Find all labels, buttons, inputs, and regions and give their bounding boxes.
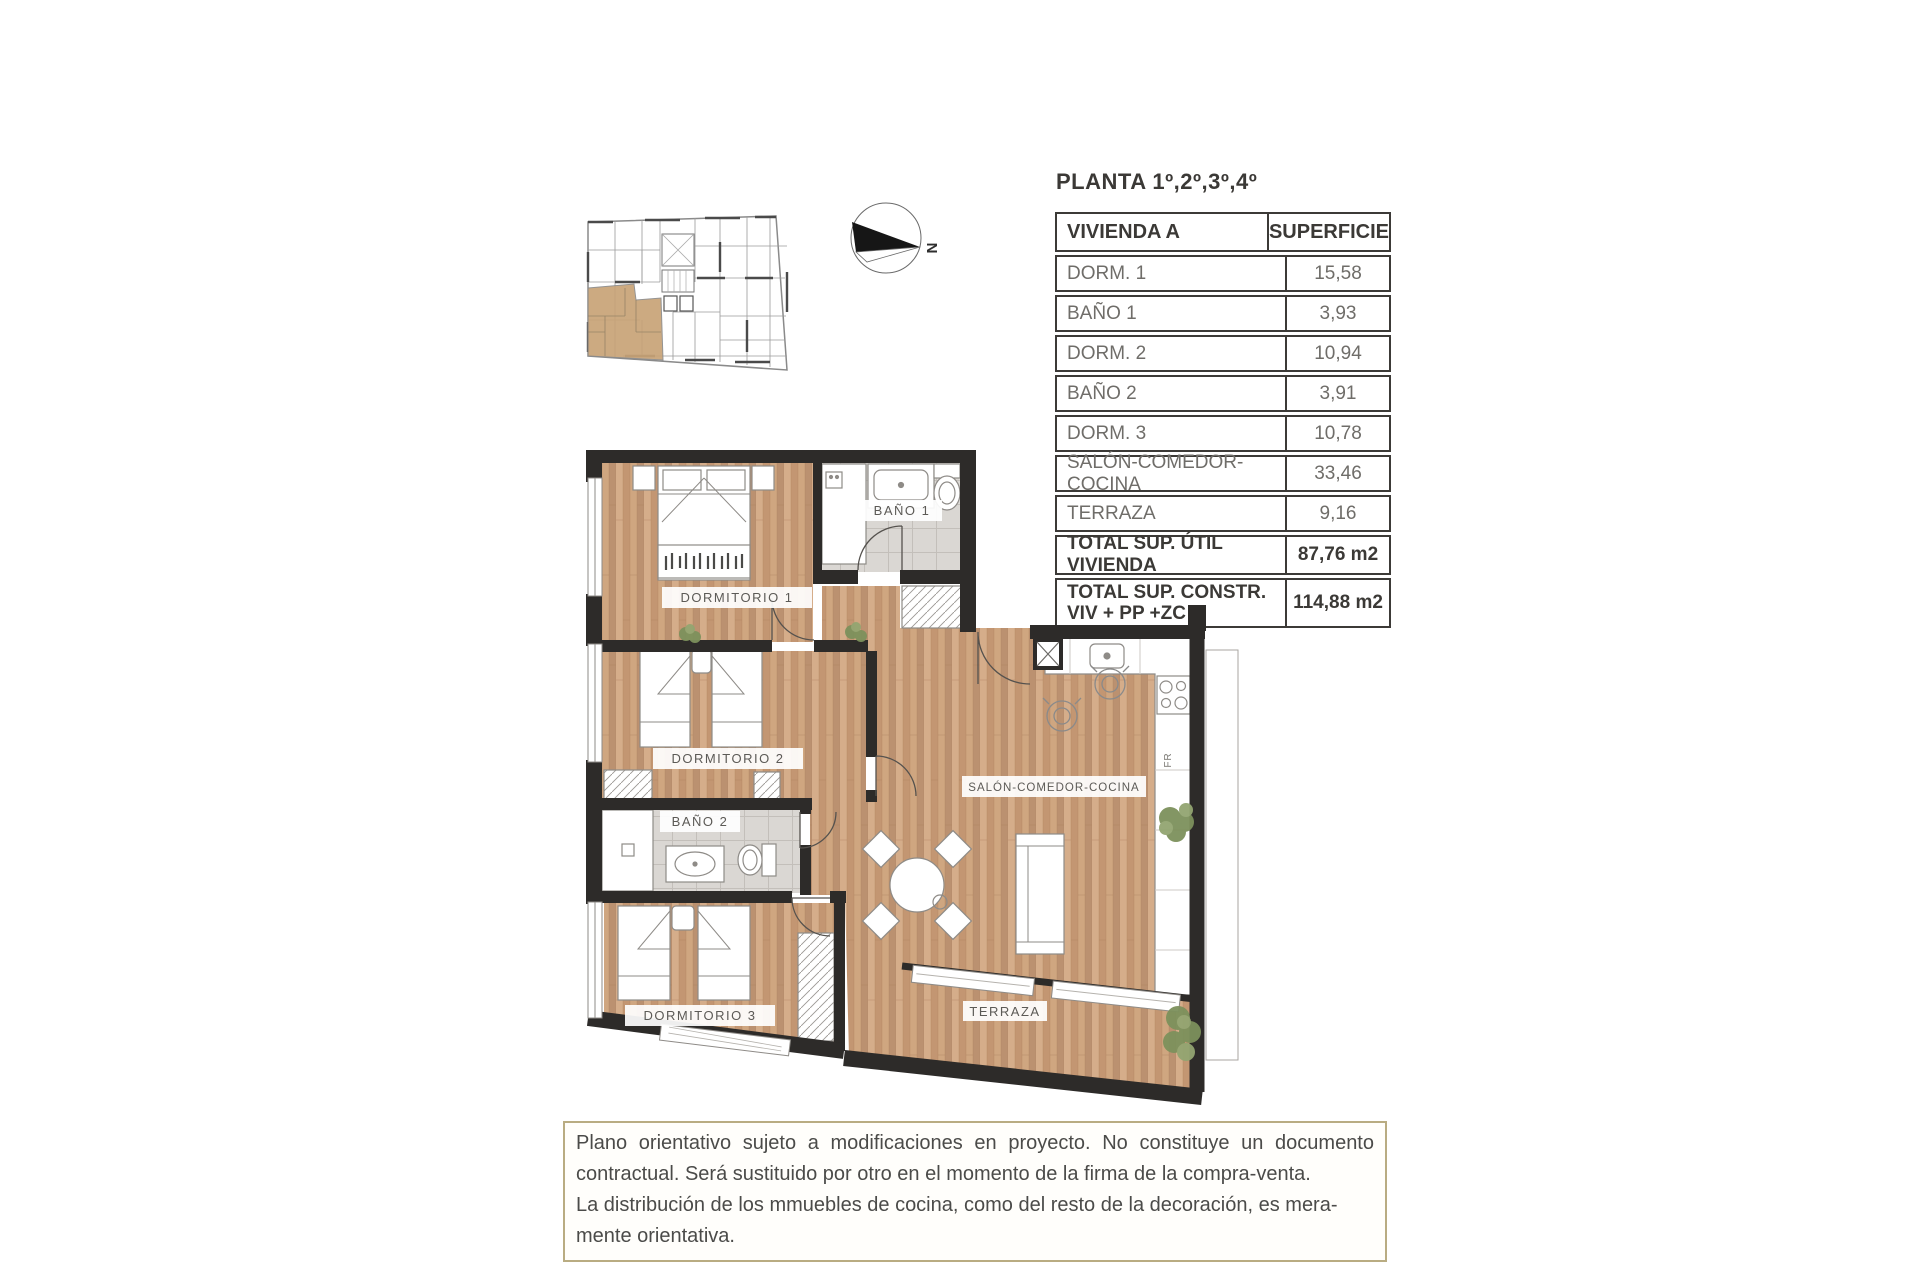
compass: N bbox=[843, 196, 953, 288]
disclaimer-box: Plano orientativo sujeto a modificacione… bbox=[563, 1121, 1387, 1262]
closet bbox=[754, 772, 780, 800]
dining-table bbox=[890, 858, 944, 912]
wardrobe bbox=[902, 586, 962, 628]
table-row: DORM. 2 10,94 bbox=[1055, 335, 1391, 372]
row-label: DORM. 1 bbox=[1057, 257, 1285, 290]
gallery-strip bbox=[1206, 650, 1238, 1060]
fridge-label: FR bbox=[1163, 752, 1174, 767]
row-value: 3,93 bbox=[1285, 297, 1389, 330]
label-salon: SALÓN-COMEDOR-COCINA bbox=[968, 781, 1139, 794]
row-label: BAÑO 2 bbox=[1057, 377, 1285, 410]
key-plan bbox=[585, 212, 795, 390]
area-table-header: VIVIENDA A SUPERFICIE bbox=[1055, 212, 1391, 252]
disclaimer-line: contractual. Será sustituido por otro en… bbox=[576, 1159, 1374, 1190]
floor-plan: FR DORMITORIO 1 BAÑO 1 DORMITORIO 2 BAÑO… bbox=[560, 430, 1260, 1120]
disclaimer-line: La distribución de los mmuebles de cocin… bbox=[576, 1190, 1374, 1221]
page-title: PLANTA 1º,2º,3º,4º bbox=[1056, 169, 1257, 195]
shaft bbox=[1033, 638, 1063, 670]
washer-icon bbox=[826, 472, 842, 488]
disclaimer-line: mente orientativa. bbox=[576, 1221, 1374, 1252]
disclaimer-line: Plano orientativo sujeto a modificacione… bbox=[576, 1128, 1374, 1159]
row-value: 3,91 bbox=[1285, 377, 1389, 410]
row-label: BAÑO 1 bbox=[1057, 297, 1285, 330]
nightstand bbox=[692, 649, 711, 673]
row-value: 10,78 bbox=[1285, 417, 1389, 450]
stove bbox=[1157, 676, 1190, 714]
wardrobe bbox=[798, 933, 834, 1041]
label-bano1: BAÑO 1 bbox=[874, 503, 931, 518]
area-table-header-name: VIVIENDA A bbox=[1057, 214, 1267, 250]
label-bano2: BAÑO 2 bbox=[672, 814, 729, 829]
sofa bbox=[1016, 834, 1064, 954]
label-dormitorio3: DORMITORIO 3 bbox=[643, 1008, 756, 1023]
nightstand bbox=[633, 466, 655, 490]
label-dormitorio1: DORMITORIO 1 bbox=[680, 590, 793, 605]
row-value: 33,46 bbox=[1285, 457, 1389, 490]
row-label: DORM. 2 bbox=[1057, 337, 1285, 370]
nightstand bbox=[752, 466, 774, 490]
row-value: 9,16 bbox=[1285, 497, 1389, 530]
row-value: 15,58 bbox=[1285, 257, 1389, 290]
shower-drain bbox=[622, 844, 634, 856]
label-dormitorio2: DORMITORIO 2 bbox=[671, 751, 784, 766]
total-value: 114,88 m2 bbox=[1285, 580, 1389, 626]
label-terraza: TERRAZA bbox=[969, 1004, 1040, 1019]
area-table-header-surface: SUPERFICIE bbox=[1267, 214, 1389, 250]
table-row: BAÑO 2 3,91 bbox=[1055, 375, 1391, 412]
table-row: BAÑO 1 3,93 bbox=[1055, 295, 1391, 332]
toilet-tank bbox=[762, 844, 776, 876]
table-row: DORM. 1 15,58 bbox=[1055, 255, 1391, 292]
nightstand bbox=[672, 906, 694, 930]
total-value: 87,76 m2 bbox=[1285, 537, 1389, 573]
row-value: 10,94 bbox=[1285, 337, 1389, 370]
compass-north-label: N bbox=[923, 243, 940, 254]
